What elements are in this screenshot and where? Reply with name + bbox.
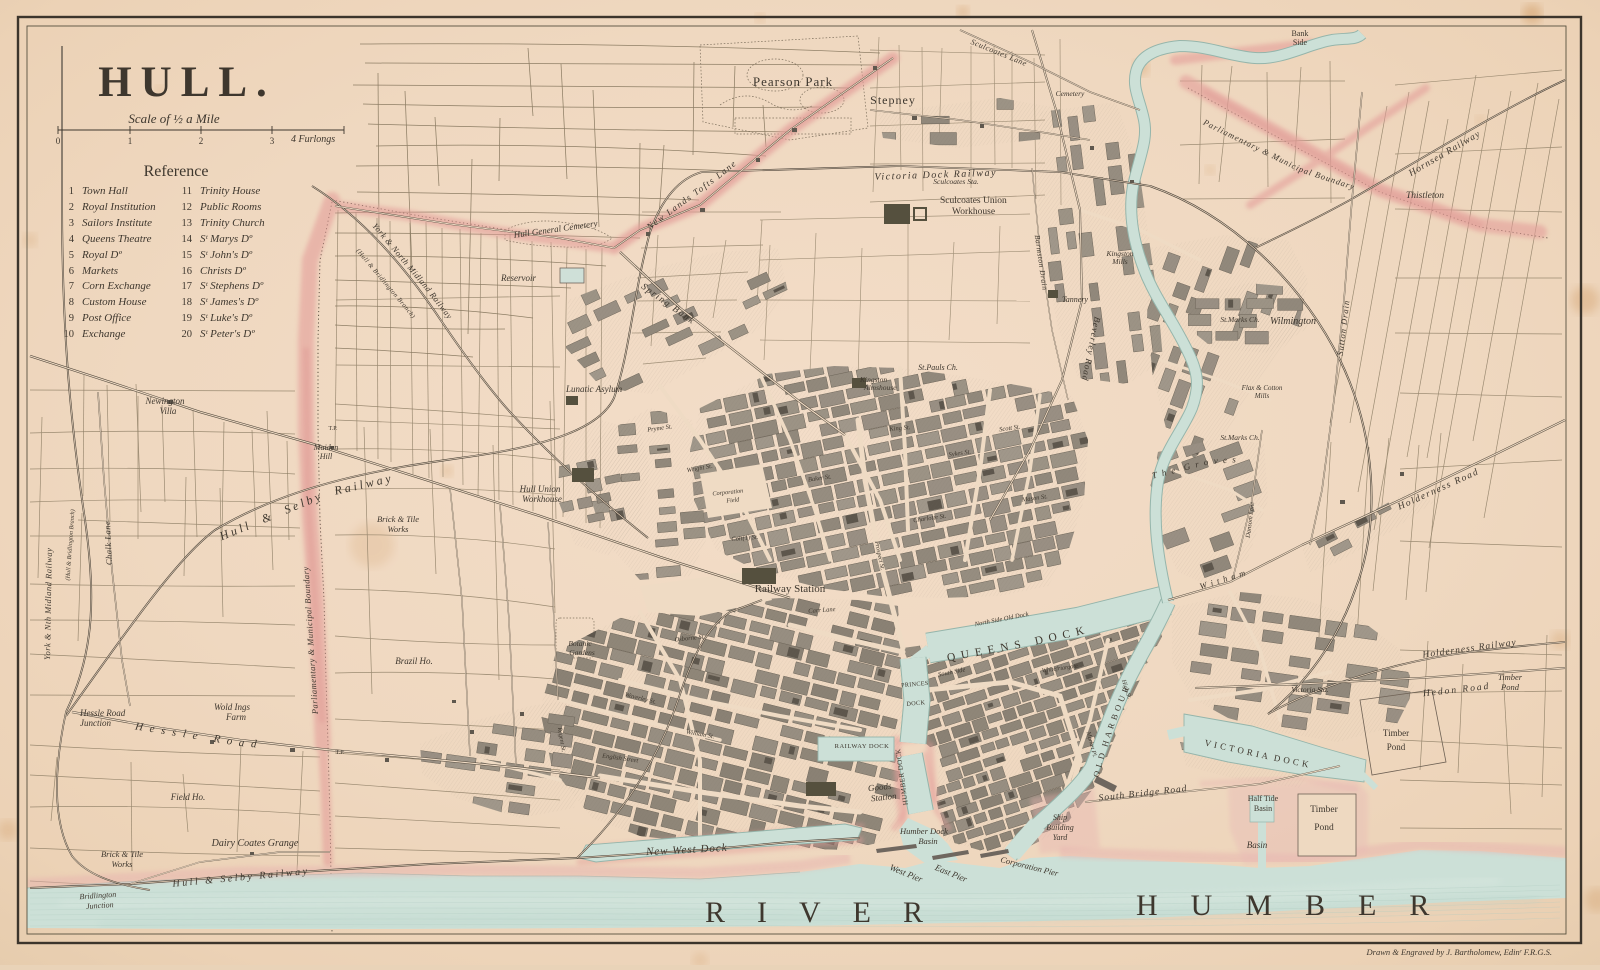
svg-text:18: 18 <box>182 297 193 308</box>
svg-text:Exchange: Exchange <box>81 328 125 340</box>
svg-text:Post Office: Post Office <box>81 312 131 324</box>
svg-text:Timber: Timber <box>1498 672 1523 682</box>
svg-text:Maiden: Maiden <box>313 443 338 452</box>
svg-text:Public Rooms: Public Rooms <box>199 201 261 213</box>
svg-text:Brazil Ho.: Brazil Ho. <box>395 656 433 666</box>
svg-text:Sᵗ Luke's Dº: Sᵗ Luke's Dº <box>200 312 253 324</box>
svg-text:2: 2 <box>199 136 204 146</box>
svg-text:Ship: Ship <box>1053 813 1067 822</box>
svg-text:Timber: Timber <box>1310 805 1338 815</box>
svg-text:Building: Building <box>1046 823 1074 832</box>
svg-text:Workhouse: Workhouse <box>952 207 995 217</box>
svg-text:Christs Dº: Christs Dº <box>200 265 246 277</box>
svg-text:Hull Union: Hull Union <box>519 484 561 494</box>
svg-text:Sᵗ Peter's Dº: Sᵗ Peter's Dº <box>200 328 255 340</box>
svg-text:Trinity Church: Trinity Church <box>200 217 265 229</box>
svg-text:2: 2 <box>69 202 74 213</box>
svg-text:Corn Exchange: Corn Exchange <box>82 280 151 292</box>
svg-text:Villa: Villa <box>160 406 177 416</box>
svg-text:3: 3 <box>69 218 74 229</box>
svg-text:Workhouse: Workhouse <box>522 494 562 504</box>
svg-text:Junction: Junction <box>86 900 114 911</box>
svg-text:Almshouse: Almshouse <box>863 383 897 392</box>
svg-text:Flax & Cotton: Flax & Cotton <box>1241 384 1283 392</box>
svg-text:HULL.: HULL. <box>98 59 276 106</box>
svg-text:Mills: Mills <box>1254 392 1270 400</box>
svg-text:St.Pauls Ch.: St.Pauls Ch. <box>918 363 958 372</box>
svg-text:Pond: Pond <box>1314 823 1334 833</box>
svg-text:Dairy Coates Grange: Dairy Coates Grange <box>211 838 299 849</box>
svg-text:Half Tide: Half Tide <box>1248 794 1279 803</box>
svg-text:7: 7 <box>69 281 74 292</box>
svg-text:6: 6 <box>69 266 74 277</box>
svg-text:Reference: Reference <box>144 163 209 180</box>
svg-text:11: 11 <box>182 186 192 197</box>
svg-text:Drawn & Engraved by J. Barthol: Drawn & Engraved by J. Bartholomew, Edin… <box>1366 947 1553 957</box>
svg-text:Basin: Basin <box>1247 840 1268 850</box>
svg-text:20: 20 <box>182 329 193 340</box>
svg-text:Hessle Road: Hessle Road <box>79 708 126 718</box>
svg-text:Sᵗ James's Dº: Sᵗ James's Dº <box>200 296 259 308</box>
svg-text:Wilmington: Wilmington <box>1270 316 1316 327</box>
svg-text:Royal Dº: Royal Dº <box>81 249 122 261</box>
svg-text:Farm: Farm <box>225 712 247 722</box>
svg-text:Hill: Hill <box>319 452 333 461</box>
svg-text:Sailors Institute: Sailors Institute <box>82 217 152 229</box>
svg-text:Sculcoates Union: Sculcoates Union <box>940 196 1007 206</box>
svg-text:Works: Works <box>112 859 134 869</box>
svg-text:Sᵗ Stephens Dº: Sᵗ Stephens Dº <box>200 280 264 292</box>
svg-text:Gardens: Gardens <box>569 648 595 657</box>
svg-text:St.Marks Ch.: St.Marks Ch. <box>1220 433 1260 442</box>
svg-text:HUMBER: HUMBER <box>1136 889 1462 922</box>
svg-text:Chalk Lane: Chalk Lane <box>102 520 114 565</box>
svg-text:Pearson Park: Pearson Park <box>753 74 833 89</box>
svg-text:Basin: Basin <box>1254 804 1272 813</box>
svg-text:Works: Works <box>388 524 410 534</box>
svg-text:Lunatic Asylum: Lunatic Asylum <box>565 384 623 394</box>
svg-text:13: 13 <box>182 218 193 229</box>
svg-text:8: 8 <box>69 297 74 308</box>
svg-text:Sᵗ John's Dº: Sᵗ John's Dº <box>200 249 253 261</box>
svg-text:9: 9 <box>69 313 74 324</box>
svg-text:T.P.: T.P. <box>336 750 345 756</box>
svg-text:Newington: Newington <box>144 396 185 406</box>
svg-text:12: 12 <box>182 202 193 213</box>
svg-text:Markets: Markets <box>81 265 118 277</box>
svg-text:Wold Ings: Wold Ings <box>214 702 250 712</box>
svg-text:Sᵗ Marys Dº: Sᵗ Marys Dº <box>200 233 253 245</box>
svg-text:T.P.: T.P. <box>329 426 338 432</box>
svg-text:Scale of ½ a Mile: Scale of ½ a Mile <box>128 111 220 126</box>
svg-text:Town Hall: Town Hall <box>82 185 128 197</box>
svg-text:Cemetery: Cemetery <box>1056 89 1085 98</box>
svg-text:17: 17 <box>182 281 193 292</box>
svg-text:Thistleton: Thistleton <box>1406 191 1444 201</box>
svg-text:Brick & Tile: Brick & Tile <box>377 514 419 524</box>
svg-text:4: 4 <box>69 234 75 245</box>
svg-text:RIVER: RIVER <box>705 896 955 929</box>
svg-text:3: 3 <box>270 136 275 146</box>
svg-text:York & Nth Midland Railway: York & Nth Midland Railway <box>42 547 54 660</box>
svg-text:Custom House: Custom House <box>82 296 147 308</box>
svg-text:Brick & Tile: Brick & Tile <box>101 849 143 859</box>
svg-text:10: 10 <box>64 329 75 340</box>
svg-text:Sculcoates Sta.: Sculcoates Sta. <box>933 177 979 186</box>
svg-text:0: 0 <box>56 136 61 146</box>
svg-text:15: 15 <box>182 250 193 261</box>
svg-text:St.Marks Ch.: St.Marks Ch. <box>1220 315 1260 324</box>
svg-text:19: 19 <box>182 313 193 324</box>
svg-text:Timber: Timber <box>1383 728 1409 738</box>
svg-text:Pond: Pond <box>1500 682 1520 692</box>
svg-text:Tannery: Tannery <box>1062 295 1088 304</box>
svg-text:Victoria Sta.: Victoria Sta. <box>1291 685 1328 694</box>
svg-text:Basin: Basin <box>918 836 937 846</box>
svg-text:4 Furlongs: 4 Furlongs <box>291 134 335 145</box>
svg-text:Humber Dock: Humber Dock <box>899 826 948 836</box>
svg-text:Pond: Pond <box>1387 742 1406 752</box>
svg-text:Mills: Mills <box>1111 257 1127 266</box>
svg-text:Yard: Yard <box>1053 833 1069 842</box>
svg-text:14: 14 <box>182 234 193 245</box>
svg-text:Queens Theatre: Queens Theatre <box>82 233 152 245</box>
svg-text:Field Ho.: Field Ho. <box>170 792 206 802</box>
svg-text:Stepney: Stepney <box>870 93 916 107</box>
svg-text:Reservoir: Reservoir <box>500 273 536 283</box>
svg-text:1: 1 <box>69 186 74 197</box>
svg-text:5: 5 <box>69 250 74 261</box>
svg-text:RAILWAY DOCK: RAILWAY DOCK <box>835 743 890 750</box>
svg-text:16: 16 <box>182 266 193 277</box>
svg-text:Botanic: Botanic <box>568 639 592 648</box>
svg-text:Railway Station: Railway Station <box>755 583 826 595</box>
svg-text:Bank: Bank <box>1292 29 1309 38</box>
svg-text:Royal Institution: Royal Institution <box>81 201 156 213</box>
svg-text:Trinity House: Trinity House <box>200 185 260 197</box>
svg-text:Junction: Junction <box>80 718 111 728</box>
svg-text:Side: Side <box>1293 38 1308 47</box>
svg-text:1: 1 <box>128 136 133 146</box>
